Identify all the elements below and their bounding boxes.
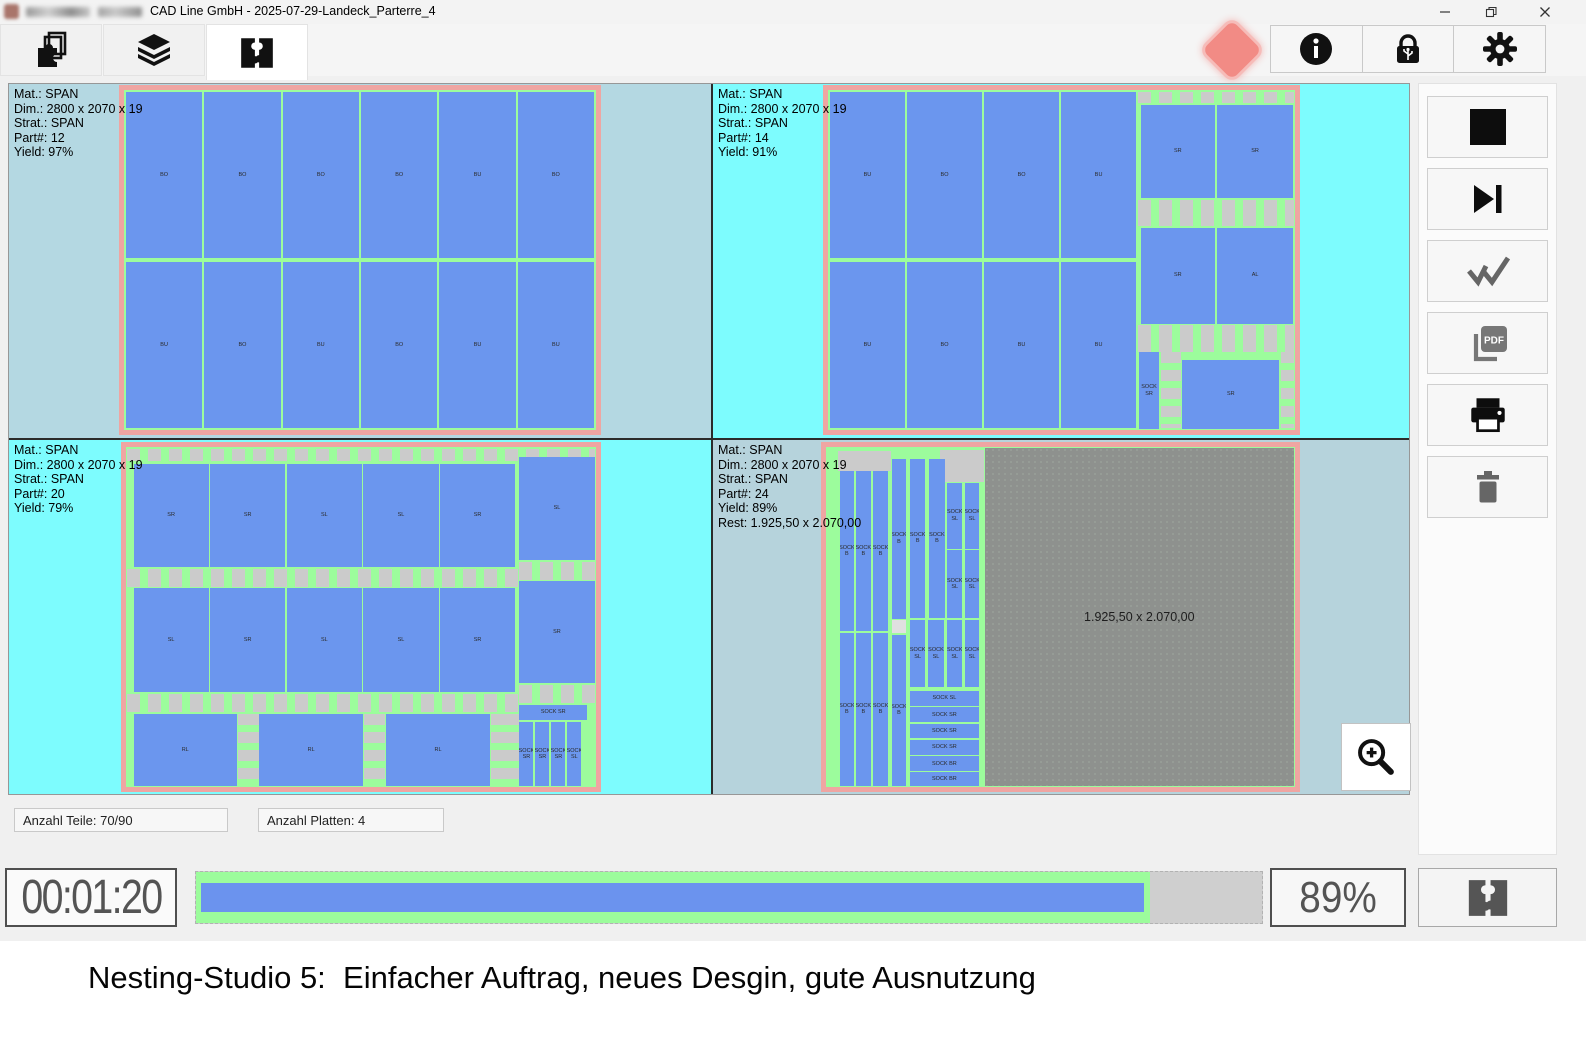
- print-icon: [1465, 394, 1511, 436]
- nested-part: SL: [287, 588, 362, 691]
- sheet-preview-1: BOBOBOBOBUBOBUBOBUBOBUBU Mat.: SPAN Dim.…: [9, 84, 711, 438]
- sheet-preview-4: 1.925,50 x 2.070,00SOCK BSOCK BSOCK BSOC…: [713, 440, 1409, 794]
- sheet-board-2[interactable]: BUBOBOBUBUBOBUBUSRSRSRALSOCK SRSR: [823, 85, 1300, 435]
- double-check-icon: [1464, 252, 1512, 290]
- sheet-info-line: Dim.: 2800 x 2070 x 19: [718, 458, 861, 473]
- progress-fill: [196, 872, 1150, 923]
- waste-comb: [1281, 352, 1294, 428]
- rest-area: 1.925,50 x 2.070,00: [985, 448, 1295, 786]
- sheet-layout: 1.925,50 x 2.070,00SOCK BSOCK BSOCK BSOC…: [826, 447, 1295, 787]
- waste-comb: [127, 694, 518, 712]
- nested-part: SOCK BR: [910, 772, 979, 786]
- tab-parts[interactable]: [0, 24, 102, 76]
- nested-part: AL: [1217, 228, 1293, 324]
- sheet-info-line: Mat.: SPAN: [718, 443, 861, 458]
- sheet-info-line: Part#: 24: [718, 487, 861, 502]
- app-logo-icon: [4, 4, 19, 19]
- nested-part: SOCK SR: [535, 722, 549, 787]
- nested-part: RL: [134, 714, 237, 785]
- nested-part: SOCK SL: [910, 691, 979, 706]
- delete-icon: [1468, 467, 1508, 507]
- waste-area: [940, 450, 983, 483]
- zoom-in-button[interactable]: [1341, 723, 1411, 791]
- nested-part: SR: [440, 588, 515, 691]
- sheet-info-line: Mat.: SPAN: [14, 443, 143, 458]
- nested-part: SOCK B: [856, 633, 871, 785]
- toolbar-button-group: [1270, 25, 1546, 73]
- nested-part: BO: [204, 92, 280, 258]
- sheet-info-line: Yield: 79%: [14, 501, 143, 516]
- progress-percent-display: 89%: [1270, 868, 1406, 927]
- restore-button[interactable]: [1474, 0, 1508, 24]
- nesting-canvas: BOBOBOBOBUBOBUBOBUBOBUBU Mat.: SPAN Dim.…: [8, 83, 1410, 795]
- waste-area: [892, 620, 907, 633]
- zoom-in-icon: [1354, 735, 1398, 779]
- print-button[interactable]: [1427, 384, 1548, 446]
- nesting-puzzle-icon: [238, 34, 276, 72]
- nested-part: SOCK SL: [965, 483, 980, 549]
- settings-button[interactable]: [1454, 26, 1545, 72]
- usb-lock-icon: [1388, 29, 1428, 69]
- nesting-puzzle-icon: [1465, 875, 1511, 921]
- sheet-info-line: Strat.: SPAN: [718, 116, 847, 131]
- minimize-button[interactable]: [1428, 0, 1462, 24]
- nested-part: SOCK B: [840, 633, 855, 785]
- nested-part: SOCK B: [892, 635, 907, 786]
- nested-part: SOCK SR: [910, 707, 979, 722]
- window-title: CAD Line GmbH - 2025-07-29-Landeck_Parte…: [150, 4, 436, 18]
- sheet-info-line: Yield: 97%: [14, 145, 143, 160]
- nested-part: SOCK BR: [910, 756, 979, 771]
- nesting-parts-icon: [31, 30, 71, 70]
- nested-part: BU: [984, 262, 1059, 428]
- sheet-info-line: Part#: 20: [14, 487, 143, 502]
- waste-comb: [1138, 92, 1294, 104]
- nested-part: SOCK SR: [1139, 352, 1159, 428]
- nested-part: BO: [518, 92, 594, 258]
- nested-part: SR: [134, 464, 209, 567]
- info-icon: [1296, 29, 1336, 69]
- nested-part: BU: [283, 262, 359, 428]
- close-button[interactable]: [1528, 0, 1562, 24]
- nested-part: SL: [134, 588, 209, 691]
- quadrant-divider-horizontal: [9, 438, 1409, 440]
- nested-part: SOCK B: [892, 459, 907, 619]
- sheet-board-1[interactable]: BOBOBOBOBUBOBUBOBUBOBUBU: [119, 85, 601, 435]
- material-layers-icon: [134, 32, 174, 68]
- sheet-info-line: Yield: 89%: [718, 501, 861, 516]
- waste-comb: [519, 562, 594, 580]
- nesting-run-button[interactable]: [1418, 868, 1557, 927]
- nested-part: SL: [519, 457, 594, 561]
- nested-part: BO: [907, 92, 982, 258]
- nested-part: SR: [440, 464, 515, 567]
- nested-part: RL: [386, 714, 489, 785]
- delete-button[interactable]: [1427, 456, 1548, 518]
- waste-comb: [1138, 325, 1294, 352]
- nested-part: BO: [204, 262, 280, 428]
- nested-part: SOCK SR: [910, 740, 979, 755]
- minimize-icon: [1439, 6, 1451, 18]
- nested-part: SOCK SL: [965, 550, 980, 618]
- sheets-count-label: Anzahl Platten: 4: [267, 813, 365, 828]
- nested-part: SR: [1141, 228, 1215, 324]
- nested-part: BO: [361, 92, 437, 258]
- nested-part: SOCK SL: [947, 483, 962, 549]
- skip-next-icon: [1467, 181, 1509, 217]
- nested-part: SR: [210, 464, 285, 567]
- nested-part: SOCK SR: [910, 724, 979, 739]
- waste-comb: [127, 569, 518, 587]
- nested-part: SR: [210, 588, 285, 691]
- sheet-info-line: Rest: 1.925,50 x 2.070,00: [718, 516, 861, 531]
- accept-all-button[interactable]: [1427, 240, 1548, 302]
- nested-part: SOCK SL: [947, 550, 962, 618]
- nested-part: SOCK SL: [947, 620, 962, 687]
- nested-part: SL: [363, 464, 438, 567]
- nested-part: SOCK SR: [519, 722, 533, 787]
- sheet-preview-2: BUBOBOBUBUBOBUBUSRSRSRALSOCK SRSR Mat.: …: [713, 84, 1409, 438]
- nested-part: SOCK SL: [567, 722, 581, 787]
- redacted-text: [26, 7, 90, 17]
- sheet-board-4[interactable]: 1.925,50 x 2.070,00SOCK BSOCK BSOCK BSOC…: [821, 442, 1300, 792]
- nested-part: SOCK SL: [928, 620, 943, 687]
- sheet-preview-3: SRSRSLSLSRSLSLSRSLSLSRSRRLRLRLSOCK SRSOC…: [9, 440, 711, 794]
- close-icon: [1539, 6, 1551, 18]
- sheet-info-line: Yield: 91%: [718, 145, 847, 160]
- sheet-layout: SRSRSLSLSRSLSLSRSLSLSRSRRLRLRLSOCK SRSOC…: [126, 447, 596, 787]
- nested-part: SOCK B: [929, 459, 944, 618]
- nested-part: BU: [518, 262, 594, 428]
- nested-part: SL: [287, 464, 362, 567]
- svg-text:PDF: PDF: [1484, 336, 1504, 347]
- nested-part: BU: [1061, 92, 1136, 258]
- nested-part: RL: [259, 714, 362, 785]
- nested-part: SOCK B: [910, 459, 925, 618]
- parts-count-field: Anzahl Teile: 70/90: [14, 808, 228, 832]
- titlebar: CAD Line GmbH - 2025-07-29-Landeck_Parte…: [0, 0, 1586, 24]
- sheet-info-line: Part#: 14: [718, 131, 847, 146]
- waste-comb: [364, 714, 386, 785]
- progress-percent-value: 89%: [1299, 873, 1377, 923]
- nested-part: SR: [519, 581, 594, 683]
- nested-part: BU: [439, 262, 515, 428]
- sheet-info-line: Dim.: 2800 x 2070 x 19: [14, 458, 143, 473]
- stop-icon: [1470, 109, 1506, 145]
- license-lock-button[interactable]: [1363, 26, 1455, 72]
- elapsed-time-display: 00:01:20: [5, 868, 177, 927]
- progress-bar: [195, 871, 1263, 924]
- nested-part: SOCK SL: [910, 620, 925, 687]
- sheets-count-field: Anzahl Platten: 4: [258, 808, 444, 832]
- settings-gear-icon: [1480, 29, 1520, 69]
- side-panel: PDF: [1418, 83, 1557, 855]
- sheet-info-line: Strat.: SPAN: [718, 472, 861, 487]
- sheet-info-2: Mat.: SPAN Dim.: 2800 x 2070 x 19 Strat.…: [718, 87, 847, 160]
- tab-nesting[interactable]: [206, 24, 308, 80]
- nested-part: SL: [363, 588, 438, 691]
- waste-comb: [1161, 352, 1181, 428]
- nested-part: BO: [984, 92, 1059, 258]
- nested-part: BU: [830, 262, 905, 428]
- sheet-info-3: Mat.: SPAN Dim.: 2800 x 2070 x 19 Strat.…: [14, 443, 143, 516]
- nested-part: BU: [126, 262, 202, 428]
- sheet-info-line: Part#: 12: [14, 131, 143, 146]
- sheet-layout: BOBOBOBOBUBOBUBOBUBOBUBU: [124, 90, 596, 430]
- nested-part: BO: [361, 262, 437, 428]
- parts-count-label: Anzahl Teile: 70/90: [23, 813, 133, 828]
- nested-part: SOCK B: [873, 633, 888, 785]
- sheet-info-line: Strat.: SPAN: [14, 472, 143, 487]
- info-button[interactable]: [1271, 26, 1363, 72]
- nested-part: SR: [1141, 105, 1215, 199]
- sheet-info-line: Mat.: SPAN: [718, 87, 847, 102]
- app-window: CAD Line GmbH - 2025-07-29-Landeck_Parte…: [0, 0, 1586, 941]
- sheet-info-line: Strat.: SPAN: [14, 116, 143, 131]
- waste-comb: [519, 685, 594, 703]
- sheet-info-4: Mat.: SPAN Dim.: 2800 x 2070 x 19 Strat.…: [718, 443, 861, 530]
- nested-part: SOCK SR: [519, 705, 587, 720]
- progress-fill-inner: [201, 883, 1144, 912]
- restore-icon: [1485, 6, 1497, 18]
- sheet-layout: BUBOBOBUBUBOBUBUSRSRSRALSOCK SRSR: [828, 90, 1295, 430]
- waste-comb: [238, 714, 259, 785]
- sheet-info-line: Dim.: 2800 x 2070 x 19: [14, 102, 143, 117]
- nested-part: SR: [1182, 360, 1279, 428]
- nested-part: BU: [1061, 262, 1136, 428]
- sheet-info-1: Mat.: SPAN Dim.: 2800 x 2070 x 19 Strat.…: [14, 87, 143, 160]
- nested-part: BO: [907, 262, 982, 428]
- waste-comb: [1138, 200, 1294, 227]
- redacted-text: [98, 7, 142, 17]
- pdf-export-button[interactable]: PDF: [1427, 312, 1548, 374]
- sheet-info-line: Mat.: SPAN: [14, 87, 143, 102]
- pdf-export-icon: PDF: [1464, 321, 1512, 365]
- nested-part: SOCK SL: [965, 620, 980, 687]
- nested-part: SOCK SR: [551, 722, 565, 787]
- tab-materials[interactable]: [103, 24, 205, 76]
- skip-next-button[interactable]: [1427, 168, 1548, 230]
- nested-part: BU: [439, 92, 515, 258]
- sheet-board-3[interactable]: SRSRSLSLSRSLSLSRSLSLSRSRRLRLRLSOCK SRSOC…: [121, 442, 601, 792]
- nested-part: SOCK B: [873, 471, 888, 630]
- nested-part: SR: [1217, 105, 1293, 199]
- stop-button[interactable]: [1427, 96, 1548, 158]
- caption-text: Nesting-Studio 5: Einfacher Auftrag, neu…: [88, 960, 1036, 996]
- sheet-info-line: Dim.: 2800 x 2070 x 19: [718, 102, 847, 117]
- waste-comb: [491, 714, 519, 785]
- nested-part: BO: [283, 92, 359, 258]
- elapsed-time-value: 00:01:20: [21, 870, 161, 925]
